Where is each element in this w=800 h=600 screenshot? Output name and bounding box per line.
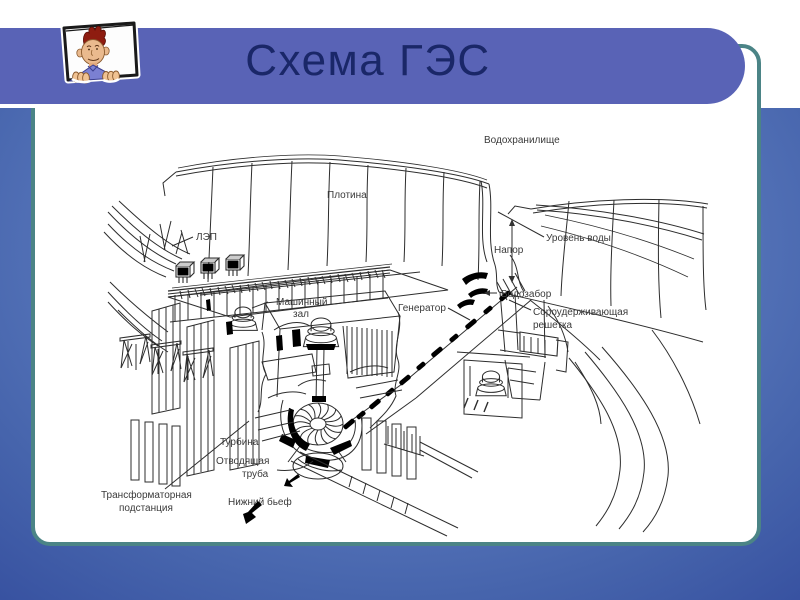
- svg-text:Напор: Напор: [494, 245, 524, 256]
- svg-text:Сороудерживающая: Сороудерживающая: [533, 307, 628, 318]
- svg-text:зал: зал: [293, 309, 309, 320]
- svg-text:Плотина: Плотина: [327, 190, 367, 201]
- svg-text:Отводящая: Отводящая: [216, 456, 269, 467]
- svg-text:подстанция: подстанция: [119, 503, 173, 514]
- svg-text:решетка: решетка: [533, 320, 573, 331]
- svg-text:Водохранилище: Водохранилище: [484, 135, 560, 146]
- svg-text:Генератор: Генератор: [398, 303, 446, 314]
- svg-text:Уровень воды: Уровень воды: [546, 233, 611, 244]
- svg-text:Трансформаторная: Трансформаторная: [101, 489, 192, 501]
- svg-text:Машинный: Машинный: [276, 297, 327, 308]
- svg-text:Турбина: Турбина: [220, 436, 259, 448]
- svg-text:труба: труба: [242, 468, 269, 480]
- svg-text:Водозабор: Водозабор: [501, 288, 552, 300]
- svg-text:ЛЭП: ЛЭП: [196, 232, 217, 243]
